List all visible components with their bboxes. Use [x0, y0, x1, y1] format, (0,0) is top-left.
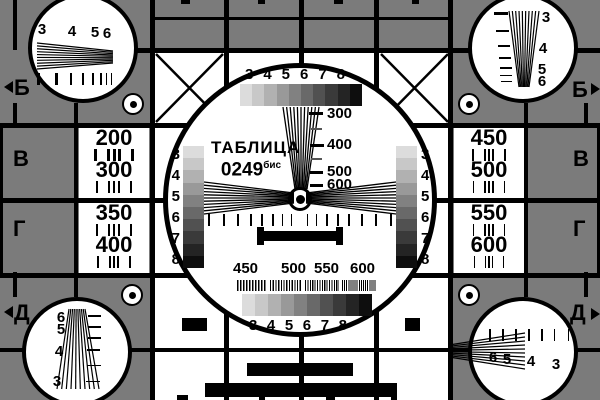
- wedge-number: 5: [500, 352, 514, 367]
- grayscale-step: [396, 195, 417, 207]
- tick-mark: [237, 214, 239, 226]
- grayscale-step: [396, 231, 417, 243]
- scale-number: 3: [245, 67, 253, 83]
- tick-mark: [311, 158, 322, 160]
- tick-mark: [500, 67, 512, 69]
- grid-line: [13, 0, 17, 50]
- panel-value: 500: [454, 162, 524, 179]
- wedge-number: 4: [536, 41, 550, 56]
- burst-label: 600: [350, 262, 375, 276]
- scale-number: 7: [421, 231, 437, 246]
- grayscale-step: [240, 84, 252, 106]
- needle-pulse-cap: [336, 227, 343, 245]
- scale-number: 3: [164, 147, 180, 162]
- panel-tick-row: [79, 256, 149, 269]
- tick-mark: [250, 214, 252, 226]
- scale-number: 7: [321, 318, 329, 334]
- tick-mark: [82, 73, 84, 85]
- frequency-burst-segment: [305, 280, 339, 291]
- grayscale-step: [396, 170, 417, 182]
- card-title: ТАБЛИЦА: [211, 139, 291, 157]
- row-label-left: Г: [13, 218, 25, 240]
- panel-tick-row: [79, 181, 149, 194]
- grayscale-bar-top: [240, 84, 362, 106]
- grayscale-step: [301, 84, 313, 106]
- grayscale-step: [268, 294, 281, 316]
- row-label-left: Б: [14, 77, 30, 99]
- wedge-number: 4: [524, 354, 538, 369]
- cropped-glyph-stub: [334, 0, 343, 4]
- grayscale-step: [242, 294, 255, 316]
- grayscale-step: [277, 84, 289, 106]
- panel-tick-row: [454, 181, 524, 194]
- cropped-glyph-stub: [259, 395, 265, 400]
- wedge-number: 4: [65, 24, 79, 39]
- scale-number: 8: [164, 252, 180, 267]
- target-marker: [458, 93, 480, 115]
- tick-mark: [87, 365, 101, 366]
- resolution-panel-left-top: 200 300: [79, 128, 149, 198]
- cropped-glyph-stub: [177, 395, 188, 400]
- grayscale-step: [289, 84, 301, 106]
- scale-number: 4: [421, 168, 437, 183]
- burst-label: 550: [314, 262, 339, 276]
- scale-number: 8: [337, 67, 345, 83]
- panel-value: 600: [454, 237, 524, 254]
- scale-number: 3: [421, 147, 437, 162]
- scale-number: 6: [421, 210, 437, 225]
- scale-number: 5: [282, 67, 290, 83]
- tick-mark: [88, 337, 101, 339]
- panel-value: 450: [454, 130, 524, 147]
- tick-mark: [272, 214, 274, 226]
- row-label-left: В: [13, 148, 29, 170]
- grayscale-step: [396, 219, 417, 231]
- tick-row: [206, 214, 296, 227]
- scale-number: 5: [285, 318, 293, 334]
- tick-mark: [496, 30, 509, 32]
- scale-number: 4: [267, 318, 275, 334]
- scale-number: 6: [300, 67, 308, 83]
- resolution-wedge-top-left: [36, 42, 114, 70]
- tick-mark: [494, 12, 508, 15]
- target-marker: [122, 93, 144, 115]
- card-number-suffix: бис: [263, 160, 281, 171]
- wedge-number: 6: [100, 26, 114, 41]
- tick-mark: [282, 214, 283, 226]
- cropped-glyph-stub: [326, 395, 335, 400]
- row-label-right: Г: [573, 218, 585, 240]
- grayscale-step: [333, 294, 346, 316]
- panel-value: 550: [454, 205, 524, 222]
- tick-mark: [86, 381, 100, 382]
- tick-mark: [87, 349, 100, 351]
- wedge-number: 3: [539, 10, 553, 25]
- tick-mark: [326, 214, 328, 226]
- tick-mark: [88, 315, 101, 317]
- row-label-right: Д: [570, 302, 586, 324]
- row-arrow-left: [4, 81, 13, 93]
- tick-mark: [100, 73, 102, 85]
- grayscale-step: [183, 170, 204, 182]
- grayscale-bar-bottom: [242, 294, 372, 316]
- wedge-number: 3: [549, 357, 563, 372]
- horizontal-resolution-wedge-left: [203, 181, 295, 215]
- row-label-right: Б: [572, 79, 588, 101]
- grayscale-step: [396, 183, 417, 195]
- tick-mark: [92, 73, 94, 85]
- tick-mark: [310, 171, 323, 174]
- grayscale-step: [183, 219, 204, 231]
- tick-mark: [106, 73, 107, 85]
- burst-label: 450: [233, 262, 258, 276]
- grayscale-step: [338, 84, 350, 106]
- cropped-glyph-stub: [412, 0, 419, 4]
- wedge-line: [37, 59, 113, 60]
- wedge-line: [522, 11, 523, 87]
- resolution-panel-left-bottom: 350 400: [79, 203, 149, 273]
- scale-number: 6: [164, 210, 180, 225]
- scale-number: 5: [164, 189, 180, 204]
- tick-mark: [311, 128, 322, 130]
- tick-mark: [223, 214, 225, 226]
- grayscale-numbers-left: 3 4 5 6 7 8: [164, 147, 180, 267]
- grayscale-step: [396, 244, 417, 256]
- grayscale-step: [396, 207, 417, 219]
- frequency-label: 300: [327, 107, 352, 121]
- grayscale-step: [183, 256, 204, 268]
- tick-mark: [309, 112, 323, 115]
- scale-number: 3: [249, 318, 257, 334]
- tick-mark: [554, 329, 555, 341]
- grayscale-step: [346, 294, 359, 316]
- scale-number: 8: [339, 318, 347, 334]
- scale-number: 8: [421, 252, 437, 267]
- tv-test-card: 200 300 350 400 450 500 550 600: [0, 0, 600, 400]
- tick-mark: [568, 329, 569, 341]
- grayscale-step: [396, 256, 417, 268]
- scale-number: 4: [263, 67, 271, 83]
- wedge-number: 3: [35, 22, 49, 37]
- panel-value: 350: [79, 205, 149, 222]
- tick-mark: [390, 214, 392, 226]
- wedge-number: 6: [535, 74, 549, 89]
- grayscale-step: [183, 195, 204, 207]
- row-arrow-right: [591, 308, 600, 320]
- row-label-right: В: [573, 148, 589, 170]
- grayscale-step: [252, 84, 264, 106]
- black-reference-rect: [405, 318, 420, 331]
- tick-mark: [70, 73, 72, 85]
- tick-mark: [55, 73, 58, 85]
- frequency-burst-segment: [270, 280, 302, 291]
- row-arrow-left: [4, 306, 13, 318]
- grayscale-step: [307, 294, 320, 316]
- cropped-glyph-stub: [181, 0, 190, 4]
- grayscale-numbers-top: 3 4 5 6 7 8: [245, 67, 345, 83]
- grayscale-step: [183, 183, 204, 195]
- panel-tick-row: [454, 256, 524, 269]
- grayscale-column-right: [396, 146, 417, 268]
- resolution-panel-right-bottom: 550 600: [454, 203, 524, 273]
- burst-label: 500: [281, 262, 306, 276]
- row-arrow-right: [591, 83, 600, 95]
- cropped-glyph-stub: [391, 395, 397, 400]
- panel-value: 200: [79, 130, 149, 147]
- frequency-burst-segment: [237, 280, 267, 291]
- grayscale-step: [359, 294, 372, 316]
- grayscale-step: [396, 158, 417, 170]
- card-number: 0249бис: [211, 157, 291, 179]
- black-reference-rect: [182, 318, 207, 331]
- tick-mark: [348, 214, 350, 226]
- wedge-line: [525, 11, 526, 87]
- tick-row: [304, 214, 394, 227]
- frequency-burst-segment: [342, 280, 376, 291]
- grayscale-step: [325, 84, 337, 106]
- scale-number: 5: [421, 189, 437, 204]
- grayscale-step: [183, 158, 204, 170]
- tick-mark: [375, 214, 377, 226]
- frequency-label: 400: [327, 138, 352, 152]
- tick-mark: [499, 57, 511, 59]
- black-bar-short: [247, 363, 353, 376]
- needle-pulse-bar: [262, 231, 338, 241]
- grayscale-column-left: [183, 146, 204, 268]
- tick-mark: [528, 329, 530, 341]
- wedge-number: 6: [486, 350, 500, 365]
- grayscale-step: [313, 84, 325, 106]
- grayscale-step: [396, 146, 417, 158]
- tick-mark: [500, 75, 512, 76]
- needle-pulse-cap: [257, 227, 264, 245]
- center-bullseye: [288, 187, 312, 211]
- grayscale-step: [320, 294, 333, 316]
- tick-mark: [111, 73, 112, 85]
- grayscale-numbers-bottom: 3 4 5 6 7 8: [249, 318, 347, 334]
- scale-number: 4: [164, 168, 180, 183]
- tick-mark: [88, 326, 101, 328]
- scale-number: 7: [164, 231, 180, 246]
- black-bar-long: [205, 383, 397, 397]
- grayscale-step: [264, 84, 276, 106]
- grayscale-step: [183, 207, 204, 219]
- grayscale-step: [183, 146, 204, 158]
- target-marker: [458, 284, 480, 306]
- tick-mark: [498, 45, 510, 47]
- tick-mark: [208, 214, 210, 226]
- card-number-value: 0249: [221, 159, 263, 180]
- tick-mark: [361, 214, 363, 226]
- tick-mark: [541, 329, 543, 341]
- tick-mark: [501, 81, 512, 82]
- scale-number: 6: [303, 318, 311, 334]
- row-label-left: Д: [14, 302, 30, 324]
- tick-mark: [310, 144, 324, 147]
- horizontal-resolution-wedge-right: [305, 181, 397, 215]
- grayscale-step: [294, 294, 307, 316]
- grayscale-step: [281, 294, 294, 316]
- grayscale-step: [350, 84, 362, 106]
- resolution-panel-right-top: 450 500: [454, 128, 524, 198]
- panel-value: 300: [79, 162, 149, 179]
- tick-mark: [337, 214, 339, 226]
- cropped-glyph-stub: [258, 0, 265, 4]
- scale-number: 7: [318, 67, 326, 83]
- tick-mark: [291, 214, 292, 226]
- tick-mark: [316, 214, 317, 226]
- grid-line: [150, 17, 453, 20]
- tick-mark: [307, 214, 308, 226]
- tick-row: [36, 73, 116, 86]
- panel-value: 400: [79, 237, 149, 254]
- grayscale-step: [183, 244, 204, 256]
- grayscale-step: [255, 294, 268, 316]
- target-marker: [121, 284, 143, 306]
- grayscale-step: [183, 231, 204, 243]
- tick-mark: [261, 214, 263, 226]
- tick-mark: [37, 73, 40, 85]
- grayscale-numbers-right: 3 4 5 6 7 8: [421, 147, 437, 267]
